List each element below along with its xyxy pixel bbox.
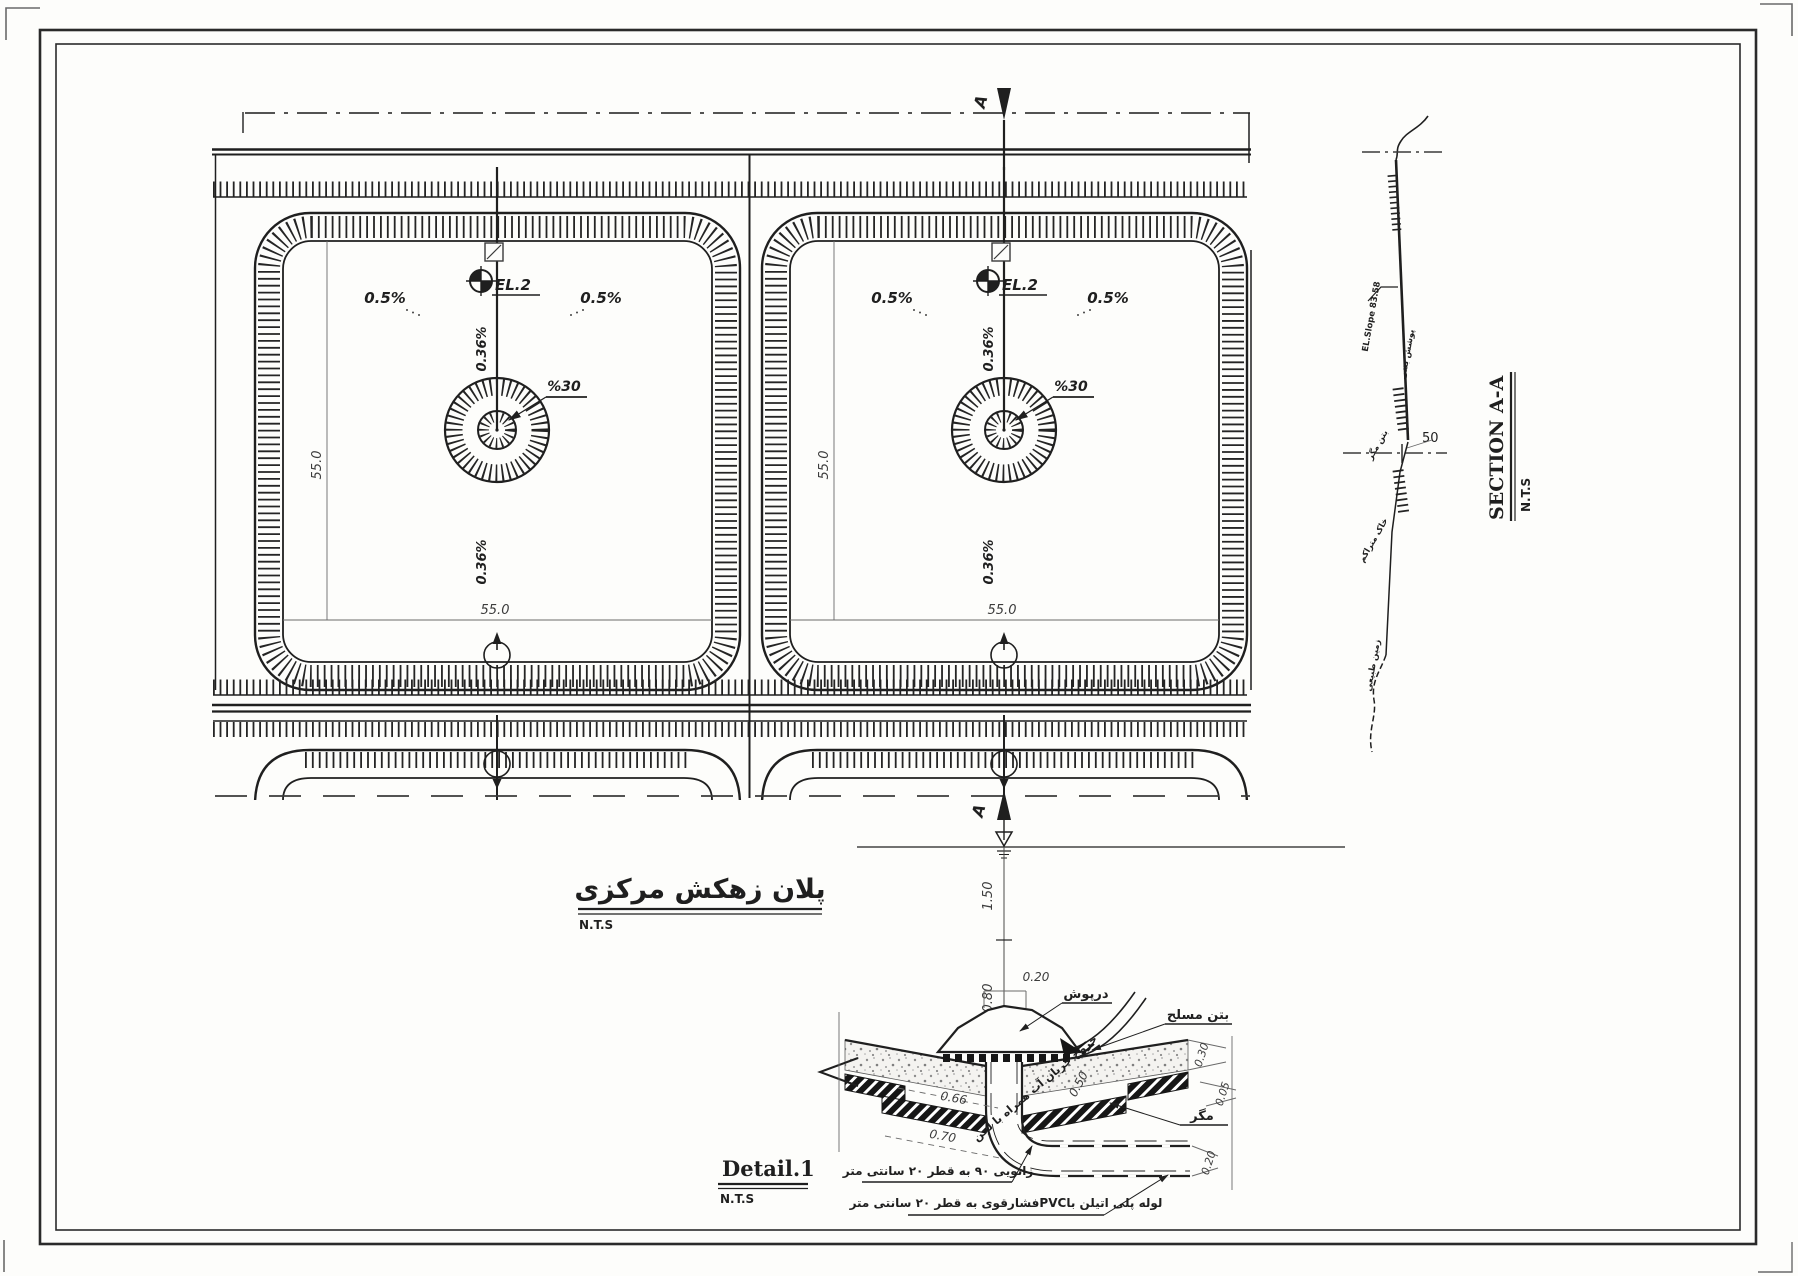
dim-pipe-020: 0.20	[1199, 1149, 1219, 1176]
section-letter-bottom: A	[967, 802, 989, 821]
cad-canvas: 55.0 55.0 EL.2 0.5% 0.5% 0.36% 0.36%	[0, 0, 1798, 1276]
section-view: EL.Slope 83.58 پوشش بتنی بتن مگر 50 خاک …	[1343, 116, 1533, 752]
drain-cap	[938, 1006, 1080, 1062]
section-marker-top: A	[969, 88, 1011, 120]
detail-title-block: Detail.1 N.T.S	[718, 1156, 815, 1206]
pipe-label: لوله پلی اتیلن باPVCفشارقوی به قطر ۲۰ سا…	[849, 1196, 1163, 1211]
section-label-4: خاک متراکم	[1357, 517, 1390, 565]
section-letter-top: A	[969, 93, 991, 112]
section-title-block: SECTION A-A N.T.S	[1486, 372, 1533, 521]
cap-label: درپوش	[1063, 987, 1108, 1002]
drawing-sheet: 55.0 55.0 EL.2 0.5% 0.5% 0.36% 0.36%	[0, 0, 1798, 1276]
dim-150: 1.50	[981, 882, 996, 911]
section-nts: N.T.S	[1519, 478, 1533, 512]
section-profile-lower	[1386, 442, 1408, 655]
section-label-1: EL.Slope 83.58	[1361, 281, 1383, 353]
basin-2	[762, 167, 1247, 690]
basin-1	[255, 167, 740, 690]
pipe-callout: لوله پلی اتیلن باPVCفشارقوی به قطر ۲۰ سا…	[849, 1175, 1168, 1215]
plan-title-block: پلان زهکش مرکزی N.T.S	[574, 874, 825, 932]
lean-label: مگر	[1189, 1108, 1214, 1124]
section-offset-dim: 50	[1422, 431, 1439, 446]
plan-nts: N.T.S	[579, 918, 613, 932]
section-label-5: زمین طبیعی	[1364, 639, 1383, 693]
section-title: SECTION A-A	[1486, 375, 1508, 520]
plan-title: پلان زهکش مرکزی	[574, 874, 825, 905]
rc-label: بتن مسلح	[1167, 1008, 1229, 1023]
section-label-3: بتن مگر	[1364, 428, 1390, 463]
elbow-label: زانویی ۹۰ به قطر ۲۰ سانتی متر	[842, 1164, 1034, 1179]
section-top-break	[1396, 116, 1428, 160]
dim-005: 0.05	[1213, 1080, 1233, 1107]
detail-title: Detail.1	[722, 1156, 815, 1181]
dim-070: 0.70	[928, 1127, 957, 1145]
plan-view: A A	[212, 88, 1251, 840]
detail-nts: N.T.S	[720, 1192, 754, 1206]
dim-030: 0.30	[1192, 1041, 1212, 1068]
dim-020-label: 0.20	[1023, 970, 1050, 984]
lean-callout: مگر	[1110, 1103, 1228, 1125]
section-label-2: پوشش بتنی	[1398, 329, 1417, 381]
elbow-callout: زانویی ۹۰ به قطر ۲۰ سانتی متر	[842, 1146, 1034, 1182]
